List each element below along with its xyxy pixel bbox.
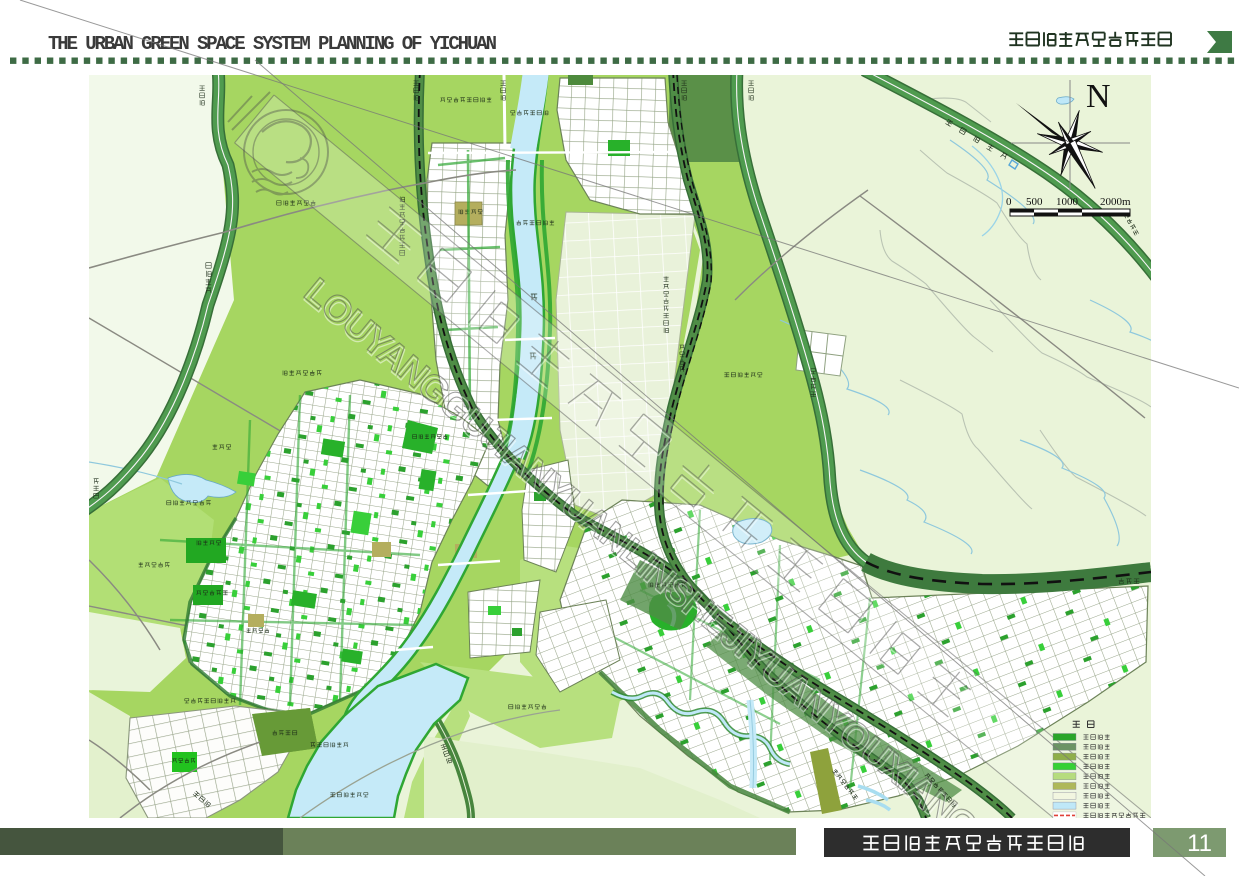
- svg-text:0: 0: [1006, 196, 1012, 208]
- svg-text:2000m: 2000m: [1100, 196, 1131, 208]
- svg-text:1000: 1000: [1056, 196, 1079, 208]
- svg-text:N: N: [1086, 78, 1111, 115]
- svg-text:500: 500: [1026, 196, 1043, 208]
- svg-text:THE URBAN GREEN SPACE SYSTEM P: THE URBAN GREEN SPACE SYSTEM PLANNING OF…: [48, 33, 497, 55]
- svg-text:11: 11: [1187, 830, 1212, 857]
